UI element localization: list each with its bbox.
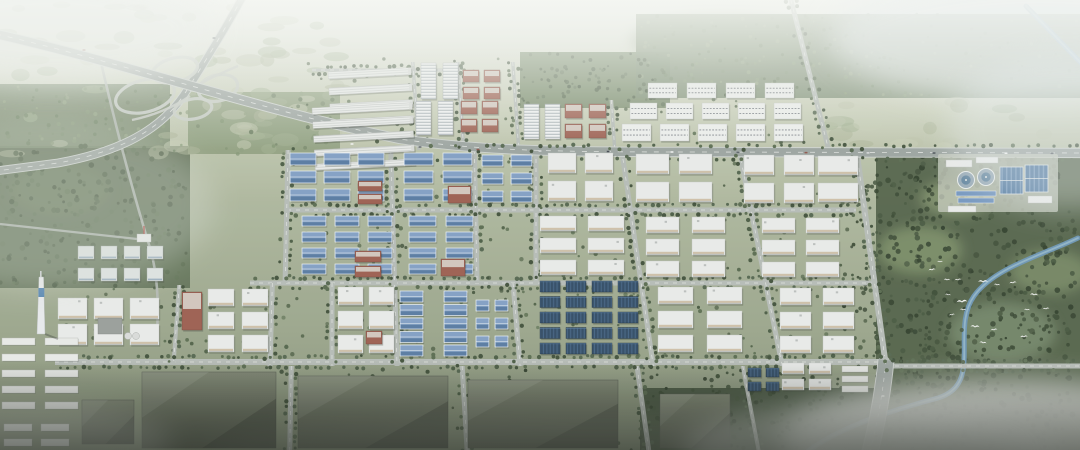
layer-fx [0, 0, 1080, 450]
foreground-vignette [0, 360, 1080, 450]
aerial-rendering-figure [0, 0, 1080, 450]
industrial-park-aerial-canvas [0, 0, 1080, 450]
